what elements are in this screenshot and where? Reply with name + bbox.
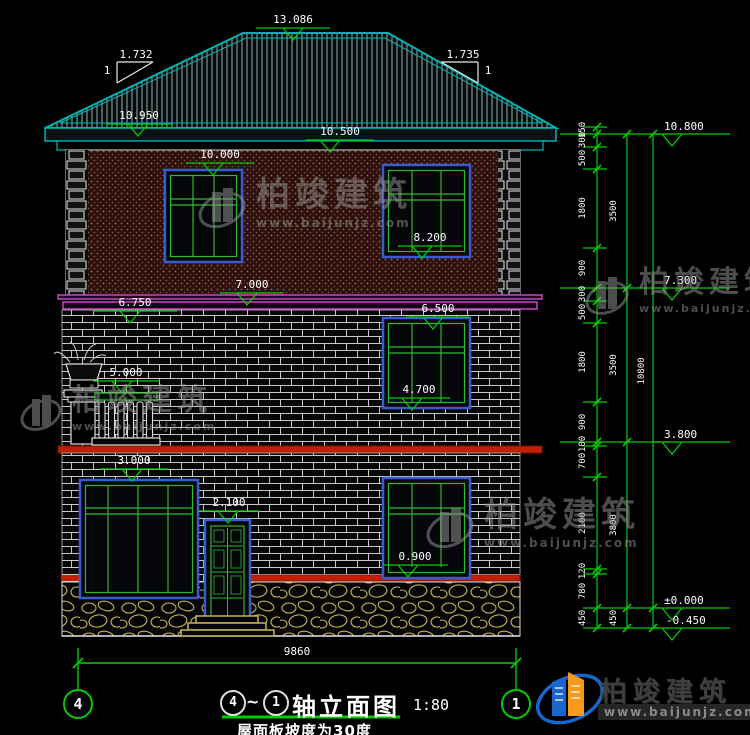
watermark-url: www.baijunjz.com [256, 216, 412, 230]
elev-f2-win-top: 6.500 [403, 302, 473, 315]
slope-left-rise: 1 [100, 64, 114, 77]
title-axis-right: 1 [263, 690, 289, 716]
watermark-logo-icon [424, 498, 476, 558]
dim-chain-3: 1800 [578, 190, 590, 226]
elev-right-zero: ±0.000 [664, 594, 734, 607]
elev-door-top: 2.100 [194, 496, 264, 509]
watermark-right: 柏竣建筑 www.baijunjz.com [583, 268, 750, 324]
brand-url: www.baijunjz.com [598, 704, 750, 720]
watermark-logo-icon [583, 268, 631, 324]
elev-balcony: 5.000 [91, 366, 161, 379]
watermark-url: www.baijunjz.com [639, 302, 750, 315]
axis-bubble-1: 1 [501, 689, 531, 719]
watermark-brand: 柏竣建筑 [484, 495, 640, 535]
entry-door [205, 520, 250, 620]
floor-band-red [58, 446, 542, 453]
slope-right-run: 1.735 [433, 48, 493, 61]
title-tilde: ~ [246, 692, 259, 711]
elevation-drawing: 13.086 10.950 10.500 10.000 8.200 7.000 … [0, 0, 750, 735]
watermark-brand: 柏竣建筑 [256, 175, 412, 215]
dim-chain-10: 700 [578, 443, 590, 479]
dim-floor-1: 3500 [609, 347, 621, 383]
watermark-brand: 柏竣建筑 [72, 383, 212, 418]
watermark-center: 柏竣建筑 www.baijunjz.com [196, 178, 412, 238]
dim-chain-14: 450 [578, 600, 590, 636]
slope-left-run: 1.732 [106, 48, 166, 61]
elev-f1-win-top: 3.000 [99, 454, 169, 467]
dim-floor-3: 450 [609, 600, 621, 636]
watermark-logo-icon [196, 178, 248, 238]
watermark-url: www.baijunjz.com [484, 536, 640, 550]
axis-bubble-4: 4 [63, 689, 93, 719]
elev-ridge: 13.086 [258, 13, 328, 26]
elev-f2-win-sill: 4.700 [384, 383, 454, 396]
watermark-logo-icon [18, 386, 64, 440]
elev-eave-left: 10.950 [104, 109, 174, 122]
title-text: 轴立面图 [292, 687, 400, 722]
elev-f3-win-top: 10.000 [185, 148, 255, 161]
watermark-left: 柏竣建筑 www.baijunjz.com [18, 386, 216, 440]
title-scale: 1:80 [406, 696, 456, 714]
dim-overall-height: 10800 [637, 353, 649, 389]
quoins-left [66, 150, 88, 296]
watermark-url: www.baijunjz.com [72, 420, 216, 433]
eave-cornice [45, 128, 556, 150]
elev-right-eave: 10.800 [664, 120, 734, 133]
dim-chain-7: 1800 [578, 344, 590, 380]
brand-logo-icon [530, 666, 609, 732]
dim-floor-0: 3500 [609, 193, 621, 229]
dim-overall-width: 9860 [267, 645, 327, 658]
slope-right-rise: 1 [481, 64, 495, 77]
watermark-lower: 柏竣建筑 www.baijunjz.com [424, 498, 640, 558]
quoins-right [498, 150, 520, 296]
title-axis-left: 4 [220, 690, 246, 716]
window-f1-left [80, 480, 198, 598]
elev-f3-band-top: 7.000 [217, 278, 287, 291]
title-note: 屋面板坡度为30度 [237, 720, 372, 735]
dim-chain-2: 500 [578, 140, 590, 176]
elev-right-base: -0.450 [666, 614, 736, 627]
elev-eave-mid: 10.500 [305, 125, 375, 138]
elev-f3-band-bot: 6.750 [100, 296, 170, 309]
elev-right-f2: 3.800 [664, 428, 734, 441]
watermark-brand: 柏竣建筑 [639, 265, 750, 300]
